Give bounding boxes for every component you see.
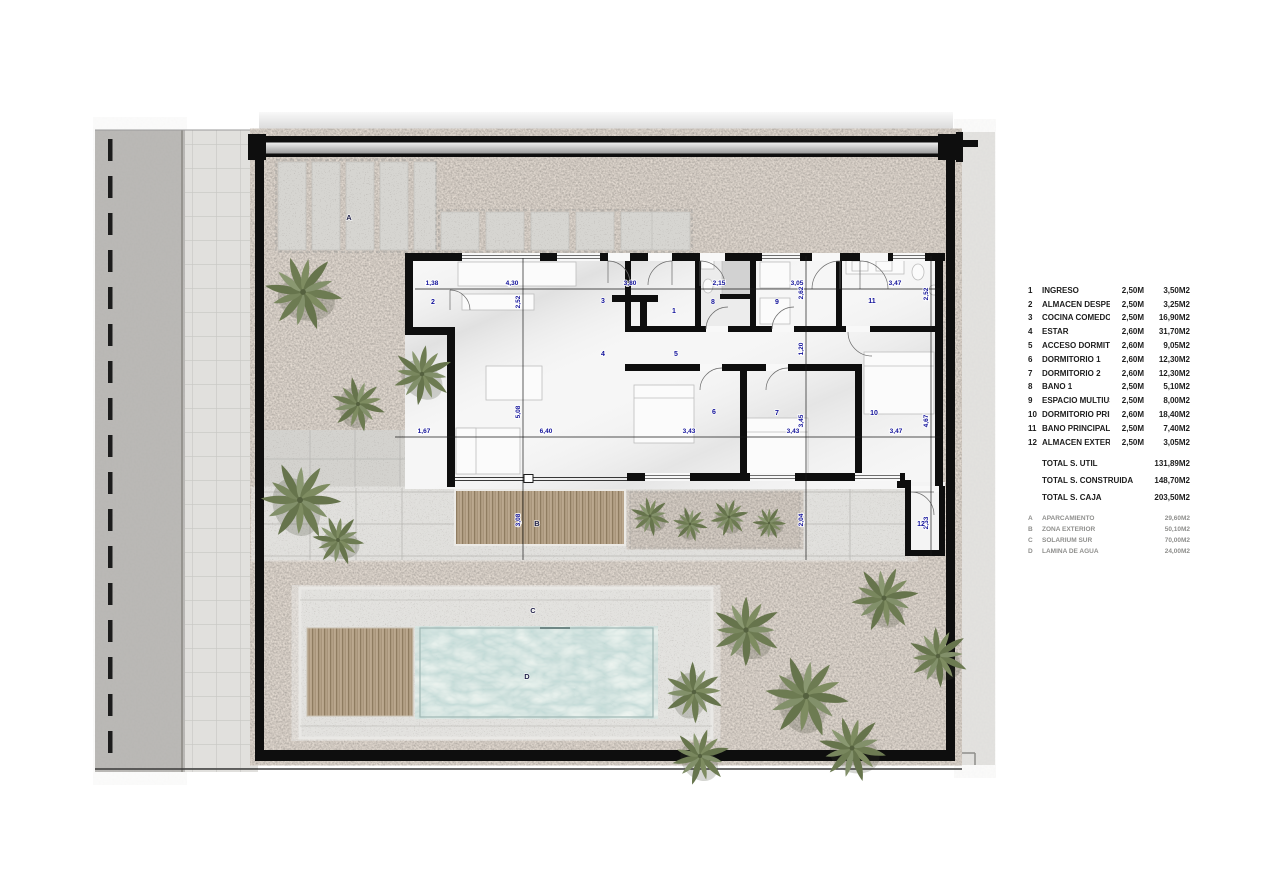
room-number: 3 bbox=[601, 298, 605, 305]
legend-totals: TOTAL S. UTIL131,89M2TOTAL S. CONSTRUIDA… bbox=[1028, 455, 1190, 506]
room-number: 4 bbox=[601, 351, 605, 358]
legend-zone-row: CSOLARIUM SUR70,00M2 bbox=[1028, 535, 1190, 546]
room-id: 8 bbox=[1028, 383, 1042, 391]
room-area: 8,00M2 bbox=[1144, 397, 1190, 405]
room-number: 9 bbox=[775, 299, 779, 306]
room-name: ALMACEN EXTERIOR bbox=[1042, 439, 1110, 447]
floor-plan-sheet: { "legend": { "rooms": [ {"id":"1","name… bbox=[0, 0, 1281, 886]
dim-label: 2,52 bbox=[923, 287, 930, 300]
room-area: 12,30M2 bbox=[1144, 356, 1190, 364]
dim-label: 1,67 bbox=[418, 428, 431, 435]
legend-total-row: TOTAL S. CONSTRUIDA148,70M2 bbox=[1028, 472, 1190, 489]
zone-mark-b: B bbox=[534, 519, 540, 528]
dim-label: 2,04 bbox=[798, 513, 805, 526]
room-area: 7,40M2 bbox=[1144, 425, 1190, 433]
room-id: 1 bbox=[1028, 287, 1042, 295]
solarium bbox=[300, 588, 712, 738]
total-label: TOTAL S. CONSTRUIDA bbox=[1028, 476, 1144, 485]
legend-room-row: 3COCINA COMEDOR2,50M16,90M2 bbox=[1028, 312, 1190, 326]
dim-label: 6,40 bbox=[540, 428, 553, 435]
room-name: ESTAR bbox=[1042, 328, 1110, 336]
zone-id: B bbox=[1028, 526, 1042, 533]
dim-label: 4,67 bbox=[923, 414, 930, 427]
street-center-dashed-line bbox=[108, 139, 113, 753]
room-name: DORMITORIO 2 bbox=[1042, 370, 1110, 378]
room-id: 6 bbox=[1028, 356, 1042, 364]
zone-mark-d: D bbox=[524, 672, 530, 681]
dim-label: 4,30 bbox=[506, 280, 519, 287]
total-value: 131,89M2 bbox=[1144, 459, 1190, 468]
dim-label: 3,47 bbox=[890, 428, 903, 435]
room-area: 3,25M2 bbox=[1144, 301, 1190, 309]
dim-label: 1,38 bbox=[426, 280, 439, 287]
room-area: 18,40M2 bbox=[1144, 411, 1190, 419]
total-label: TOTAL S. CAJA bbox=[1028, 493, 1144, 502]
dim-label: 2,15 bbox=[713, 280, 726, 287]
legend-room-row: 1INGRESO2,50M3,50M2 bbox=[1028, 284, 1190, 298]
zone-mark-a: A bbox=[346, 213, 352, 222]
zone-area: 24,00M2 bbox=[1144, 548, 1190, 555]
south-walkway bbox=[264, 488, 905, 560]
zone-id: D bbox=[1028, 548, 1042, 555]
room-number: 10 bbox=[870, 410, 878, 417]
legend-room-list: 1INGRESO2,50M3,50M22ALMACEN DESPENSA2,50… bbox=[1028, 284, 1190, 450]
room-height: 2,60M bbox=[1110, 342, 1144, 350]
room-number: 11 bbox=[868, 298, 876, 305]
room-number: 8 bbox=[711, 299, 715, 306]
carport-slabs bbox=[276, 160, 692, 252]
room-id: 11 bbox=[1028, 425, 1042, 433]
zone-id: C bbox=[1028, 537, 1042, 544]
dim-label: 3,05 bbox=[791, 280, 804, 287]
legend-zone-row: BZONA EXTERIOR50,10M2 bbox=[1028, 524, 1190, 535]
room-id: 5 bbox=[1028, 342, 1042, 350]
room-height: 2,50M bbox=[1110, 287, 1144, 295]
room-area: 5,10M2 bbox=[1144, 383, 1190, 391]
room-area: 31,70M2 bbox=[1144, 328, 1190, 336]
dim-label: 3,47 bbox=[889, 280, 902, 287]
legend-panel: 1INGRESO2,50M3,50M22ALMACEN DESPENSA2,50… bbox=[1028, 284, 1190, 557]
dim-label: 2,62 bbox=[798, 286, 805, 299]
dim-label: 3,80 bbox=[624, 280, 637, 287]
zone-name: APARCAMIENTO bbox=[1042, 515, 1144, 522]
room-area: 9,05M2 bbox=[1144, 342, 1190, 350]
room-area: 12,30M2 bbox=[1144, 370, 1190, 378]
room-number: 12 bbox=[917, 521, 925, 528]
zone-name: ZONA EXTERIOR bbox=[1042, 526, 1144, 533]
zone-id: A bbox=[1028, 515, 1042, 522]
top-wall-shadow-band bbox=[259, 112, 953, 134]
room-id: 3 bbox=[1028, 314, 1042, 322]
dim-label: 5,08 bbox=[515, 405, 522, 418]
house-deck bbox=[455, 490, 625, 545]
room-height: 2,50M bbox=[1110, 425, 1144, 433]
legend-zone-row: AAPARCAMIENTO29,60M2 bbox=[1028, 513, 1190, 524]
legend-room-row: 7DORMITORIO 22,60M12,30M2 bbox=[1028, 367, 1190, 381]
room-name: ALMACEN DESPENSA bbox=[1042, 301, 1110, 309]
room-height: 2,60M bbox=[1110, 328, 1144, 336]
room-height: 2,50M bbox=[1110, 301, 1144, 309]
room-height: 2,50M bbox=[1110, 397, 1144, 405]
room-name: INGRESO bbox=[1042, 287, 1110, 295]
room-height: 2,60M bbox=[1110, 411, 1144, 419]
room-number: 2 bbox=[431, 299, 435, 306]
legend-room-row: 5ACCESO DORMITORIOS2,60M9,05M2 bbox=[1028, 339, 1190, 353]
room-name: DORMITORIO PRINCIPAL bbox=[1042, 411, 1110, 419]
room-name: BAÑO PRINCIPAL bbox=[1042, 425, 1110, 433]
room-number: 1 bbox=[672, 308, 676, 315]
room-height: 2,60M bbox=[1110, 356, 1144, 364]
room-area: 3,50M2 bbox=[1144, 287, 1190, 295]
zone-area: 29,60M2 bbox=[1144, 515, 1190, 522]
room-name: BAÑO 1 bbox=[1042, 383, 1110, 391]
room-area: 16,90M2 bbox=[1144, 314, 1190, 322]
dim-label: 3,08 bbox=[515, 513, 522, 526]
zone-mark-c: C bbox=[530, 606, 536, 615]
room-name: DORMITORIO 1 bbox=[1042, 356, 1110, 364]
sidewalk bbox=[185, 130, 258, 772]
room-name: ACCESO DORMITORIOS bbox=[1042, 342, 1110, 350]
room-name: COCINA COMEDOR bbox=[1042, 314, 1110, 322]
dim-label: 3,43 bbox=[683, 428, 696, 435]
room-id: 9 bbox=[1028, 397, 1042, 405]
legend-room-row: 8BAÑO 12,50M5,10M2 bbox=[1028, 381, 1190, 395]
room-number: 6 bbox=[712, 409, 716, 416]
legend-room-row: 10DORMITORIO PRINCIPAL2,60M18,40M2 bbox=[1028, 408, 1190, 422]
room-id: 7 bbox=[1028, 370, 1042, 378]
zone-name: SOLARIUM SUR bbox=[1042, 537, 1144, 544]
legend-zone-list: AAPARCAMIENTO29,60M2BZONA EXTERIOR50,10M… bbox=[1028, 513, 1190, 558]
dim-label: 3,43 bbox=[787, 428, 800, 435]
legend-room-row: 2ALMACEN DESPENSA2,50M3,25M2 bbox=[1028, 298, 1190, 312]
room-id: 12 bbox=[1028, 439, 1042, 447]
street bbox=[95, 130, 258, 772]
room-height: 2,50M bbox=[1110, 314, 1144, 322]
legend-room-row: 11BAÑO PRINCIPAL2,50M7,40M2 bbox=[1028, 422, 1190, 436]
room-height: 2,60M bbox=[1110, 370, 1144, 378]
legend-total-row: TOTAL S. CAJA203,50M2 bbox=[1028, 489, 1190, 506]
room-height: 2,50M bbox=[1110, 383, 1144, 391]
total-value: 203,50M2 bbox=[1144, 493, 1190, 502]
dim-label: 3,45 bbox=[798, 414, 805, 427]
total-label: TOTAL S. UTIL bbox=[1028, 459, 1144, 468]
legend-room-row: 6DORMITORIO 12,60M12,30M2 bbox=[1028, 353, 1190, 367]
legend-room-row: 9ESPACIO MULTIUSOS2,50M8,00M2 bbox=[1028, 394, 1190, 408]
legend-room-row: 12ALMACEN EXTERIOR2,50M3,05M2 bbox=[1028, 436, 1190, 450]
zone-area: 50,10M2 bbox=[1144, 526, 1190, 533]
room-number: 7 bbox=[775, 410, 779, 417]
dim-label: 2,52 bbox=[515, 295, 522, 308]
pool bbox=[420, 628, 653, 717]
room-number: 5 bbox=[674, 351, 678, 358]
room-area: 3,05M2 bbox=[1144, 439, 1190, 447]
zone-name: LAMINA DE AGUA bbox=[1042, 548, 1144, 555]
legend-zone-row: DLAMINA DE AGUA24,00M2 bbox=[1028, 546, 1190, 557]
room-id: 10 bbox=[1028, 411, 1042, 419]
legend-total-row: TOTAL S. UTIL131,89M2 bbox=[1028, 455, 1190, 472]
zone-area: 70,00M2 bbox=[1144, 537, 1190, 544]
room-name: ESPACIO MULTIUSOS bbox=[1042, 397, 1110, 405]
room-id: 2 bbox=[1028, 301, 1042, 309]
total-value: 148,70M2 bbox=[1144, 476, 1190, 485]
dim-label: 1,20 bbox=[798, 342, 805, 355]
room-height: 2,50M bbox=[1110, 439, 1144, 447]
room-id: 4 bbox=[1028, 328, 1042, 336]
legend-room-row: 4ESTAR2,60M31,70M2 bbox=[1028, 325, 1190, 339]
pool-deck bbox=[307, 628, 413, 716]
